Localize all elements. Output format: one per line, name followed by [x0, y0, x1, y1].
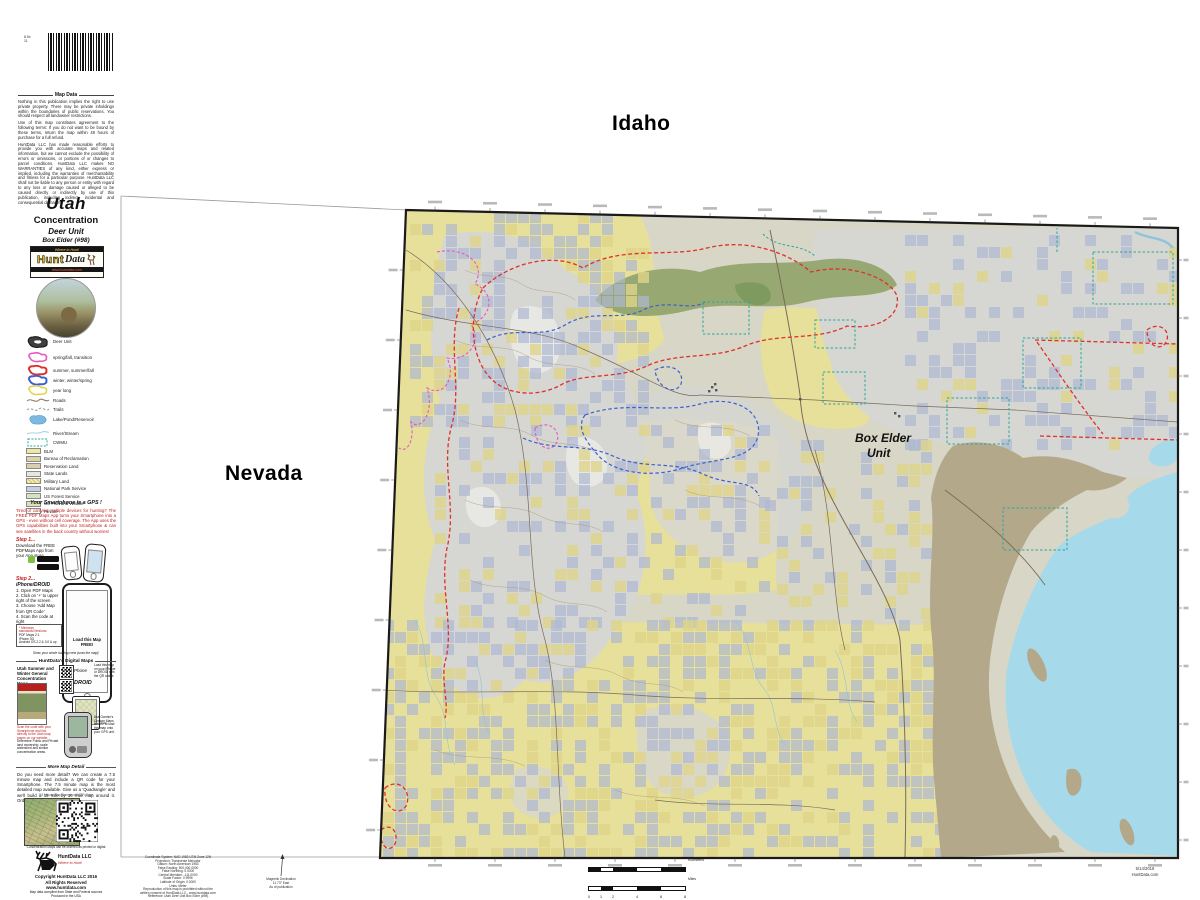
ownership-note: Determine Public and Private land owners…	[17, 740, 59, 755]
step2-item-2: 2. Click on '+' to upper right of the sc…	[16, 593, 62, 603]
svg-text:Box Elder: Box Elder	[855, 431, 912, 445]
map-product-cover	[17, 683, 47, 725]
map-data-p2: Use of this map constitutes agreement to…	[18, 121, 114, 140]
huntdata-logo: Where to Hunt! Hunt Data www.huntdata.co…	[30, 246, 104, 278]
droid-label: DROID	[74, 680, 92, 686]
title-state: Utah	[14, 194, 118, 214]
sheet-size-note: 8.5x 11	[24, 36, 31, 44]
stamp-site: HuntData.com	[1105, 872, 1185, 878]
km-label: Kilometers	[688, 858, 704, 862]
svg-text:Unit: Unit	[867, 446, 891, 460]
logo-data: Data	[65, 254, 85, 265]
map-data-p1: Nothing in this publication implies the …	[18, 100, 114, 119]
scale-bar: Kilometers Miles 0 1 2 4 6 8	[588, 858, 704, 900]
qr-code-iphone	[60, 666, 73, 679]
idaho-label: Idaho	[612, 112, 671, 136]
magnetic-declination: Magnetic Declination 11.73° East As of p…	[255, 854, 307, 889]
elk-icon	[86, 254, 97, 266]
garmin-gps-image	[64, 712, 92, 758]
gps-intro: Tired of carrying multiple devices for h…	[16, 508, 116, 534]
step2-item-4: 4. Scan the code at right	[16, 614, 62, 624]
phone-image-2	[82, 543, 106, 583]
map-data-heading: Map Data	[18, 92, 114, 98]
gps-heading: Your Smartphone is a GPS !	[16, 500, 116, 506]
elk-logo-tagline: Where to Hunt!	[58, 861, 82, 865]
spring-fall-icon	[26, 351, 50, 363]
phone1-screen	[64, 551, 79, 571]
scale-bar-miles	[588, 886, 686, 891]
step1-label: Step 1...	[16, 537, 116, 543]
sheet-size-line2: 11	[24, 40, 31, 44]
declination-note: As of publication	[255, 885, 307, 889]
min-standards-box: * Minimum standards/Versions: PDF Maps 2…	[16, 624, 62, 647]
legend-row-lake: Lake/Pond/Reservoir	[26, 412, 94, 426]
qr-code-droid	[60, 680, 73, 693]
legend-row-spring-fall: spring/fall, transition	[26, 351, 92, 363]
lake-icon	[26, 413, 50, 426]
logo-url: www.huntdata.com	[31, 267, 103, 272]
step2-block: Step 2... iPhone/DROID 1. Open PDF Maps …	[16, 576, 62, 624]
min-item-3: Android OS 2.2 & 3.0 & up	[19, 641, 59, 645]
legend-row-deer-unit: Deer Unit	[26, 334, 72, 349]
step2-item-3: 3. Choose 'Add Map from QR Code'	[16, 603, 62, 613]
box-elder-unit-map: Box Elder Unit	[115, 190, 1190, 870]
android-icon	[28, 556, 35, 563]
detail-heading: More Map Detail	[16, 765, 116, 770]
title-unit-name: Box Elder (#98)	[14, 237, 118, 244]
scale-numbers: 0 1 2 4 6 8	[588, 895, 688, 900]
projection-info: Coordinate System: NAD 1983 UTM Zone 12N…	[118, 856, 238, 899]
map-sheet: 8.5x 11 Map Data Nothing in this publica…	[0, 0, 1200, 900]
copyright-fine2: Produced in the USA	[14, 895, 118, 899]
declination-arrow-icon	[276, 854, 286, 876]
title-type: Concentration	[14, 215, 118, 226]
phone2-screen	[86, 549, 103, 573]
deer-unit-icon	[26, 335, 50, 349]
title-block: Utah Concentration Deer Unit Box Elder (…	[14, 194, 118, 244]
logo-hunt: Hunt	[37, 254, 64, 266]
crew-note: Show your whole hunting crew (scan the m…	[14, 652, 118, 656]
phone-image-1	[60, 545, 82, 581]
phone-screen-text: Load this Map FREE!	[67, 637, 107, 647]
print-stamp: 5/14/2016 HuntData.com	[1105, 866, 1185, 879]
miles-label: Miles	[688, 877, 696, 881]
frame-lines	[121, 196, 406, 857]
deer-photo	[36, 278, 96, 338]
scale-bar-kilometers	[588, 867, 686, 872]
huntdata-elk-logo: HuntData LLC Where to Hunt!	[32, 850, 102, 872]
sidebar: 8.5x 11 Map Data Nothing in this publica…	[14, 28, 118, 898]
iphone-label: Phone	[74, 668, 87, 673]
app-store-badge	[37, 556, 59, 562]
title-unit-type: Deer Unit	[14, 227, 118, 236]
google-play-badge	[37, 564, 59, 570]
copyright-block: Copyright HuntData LLC 2016 All Rights R…	[14, 874, 118, 899]
upc-barcode	[48, 33, 114, 71]
map-data-section: Map Data Nothing in this publication imp…	[18, 92, 114, 205]
qr-code-large	[56, 800, 98, 842]
logo-wordmark: Hunt Data	[31, 252, 103, 267]
elk-logo-brand: HuntData LLC	[58, 854, 91, 860]
